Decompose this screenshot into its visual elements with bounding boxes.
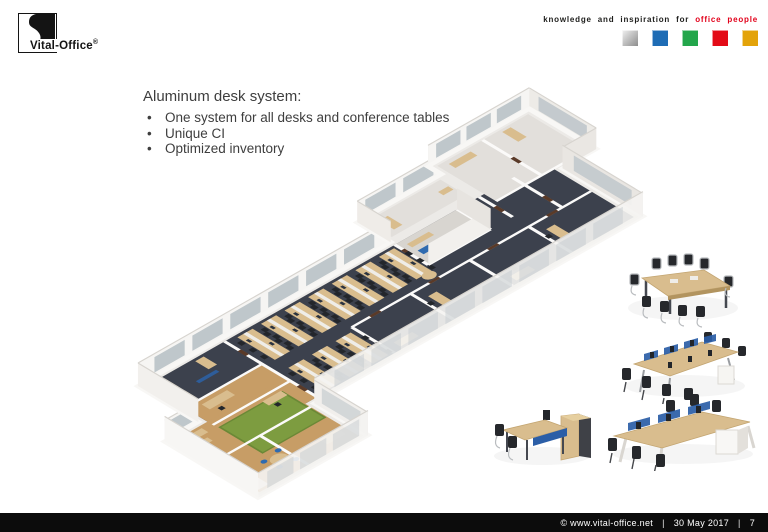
footer-copyright: © www.vital-office.net [560, 518, 653, 528]
presentation-slide: Vital-Office® knowledge and inspiration … [0, 0, 768, 532]
brand-square-amber [742, 30, 758, 46]
slide-footer: © www.vital-office.net | 30 May 2017 | 7 [0, 513, 768, 532]
brand-color-squares [622, 30, 758, 46]
tagline-highlight: office people [695, 15, 758, 24]
footer-separator: | [662, 518, 665, 528]
footer-page-number: 7 [750, 518, 755, 528]
brand-square-silver [622, 30, 638, 46]
logo-wordmark: Vital-Office® [28, 39, 100, 52]
product-render-six-person-bench [598, 386, 768, 471]
footer-date: 30 May 2017 [674, 518, 729, 528]
brand-square-green [682, 30, 698, 46]
brand-square-blue [652, 30, 668, 46]
brand-square-red [712, 30, 728, 46]
company-tagline: knowledge and inspiration for office peo… [543, 15, 758, 24]
product-render-conference-table [608, 250, 748, 330]
registered-mark: ® [93, 39, 98, 46]
product-render-desk-with-cabinet [487, 386, 602, 471]
footer-separator: | [738, 518, 741, 528]
